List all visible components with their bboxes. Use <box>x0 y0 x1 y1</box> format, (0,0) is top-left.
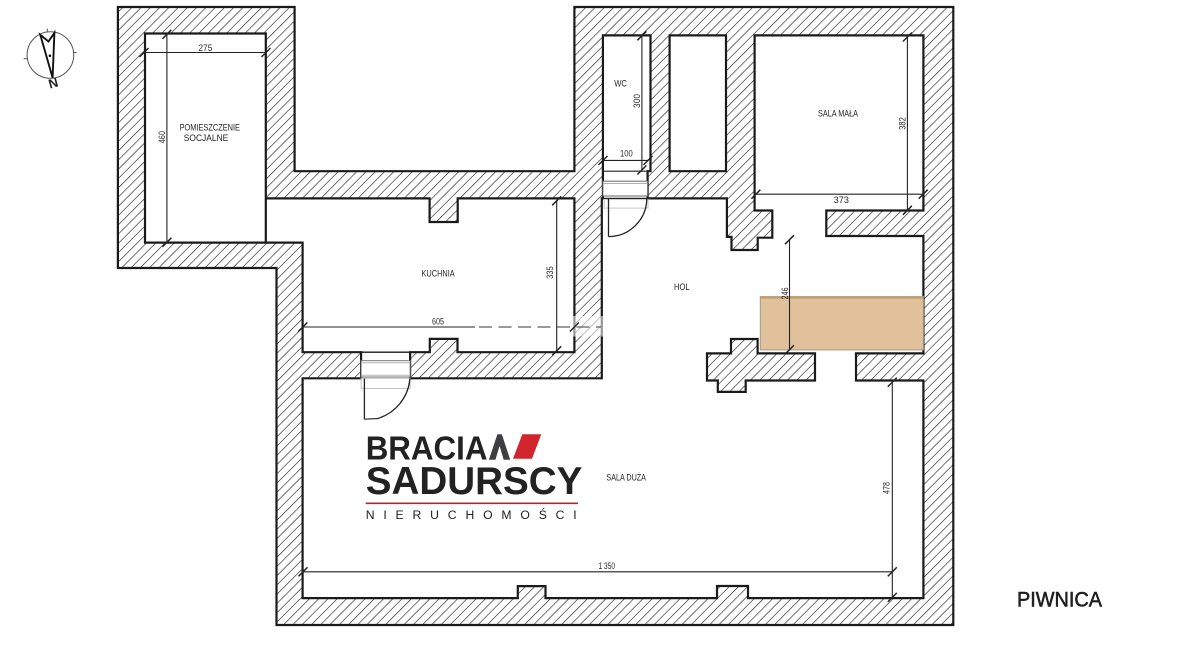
svg-text:SOCJALNE: SOCJALNE <box>184 133 229 143</box>
svg-text:300: 300 <box>632 94 642 108</box>
svg-text:275: 275 <box>198 43 212 53</box>
svg-text:KUCHNIA: KUCHNIA <box>422 269 456 279</box>
svg-text:SALA DUŻA: SALA DUŻA <box>606 473 646 483</box>
svg-text:NIERUCHOMOŚCI: NIERUCHOMOŚCI <box>366 507 577 522</box>
svg-text:373: 373 <box>834 195 849 205</box>
svg-text:382: 382 <box>898 117 908 130</box>
svg-text:1 350: 1 350 <box>599 561 616 571</box>
svg-text:PIWNICA: PIWNICA <box>1017 588 1103 612</box>
svg-text:SALA MAŁA: SALA MAŁA <box>818 109 859 119</box>
svg-text:335: 335 <box>545 266 555 279</box>
svg-text:POMIESZCZENIE: POMIESZCZENIE <box>180 122 240 132</box>
svg-text:SADURSCY: SADURSCY <box>366 459 583 503</box>
svg-text:HOL: HOL <box>674 282 690 292</box>
svg-text:460: 460 <box>157 131 167 143</box>
svg-text:246: 246 <box>780 287 790 299</box>
svg-text:WC: WC <box>614 79 627 89</box>
svg-text:100: 100 <box>620 149 633 159</box>
svg-text:478: 478 <box>881 482 891 494</box>
svg-text:605: 605 <box>432 317 444 327</box>
